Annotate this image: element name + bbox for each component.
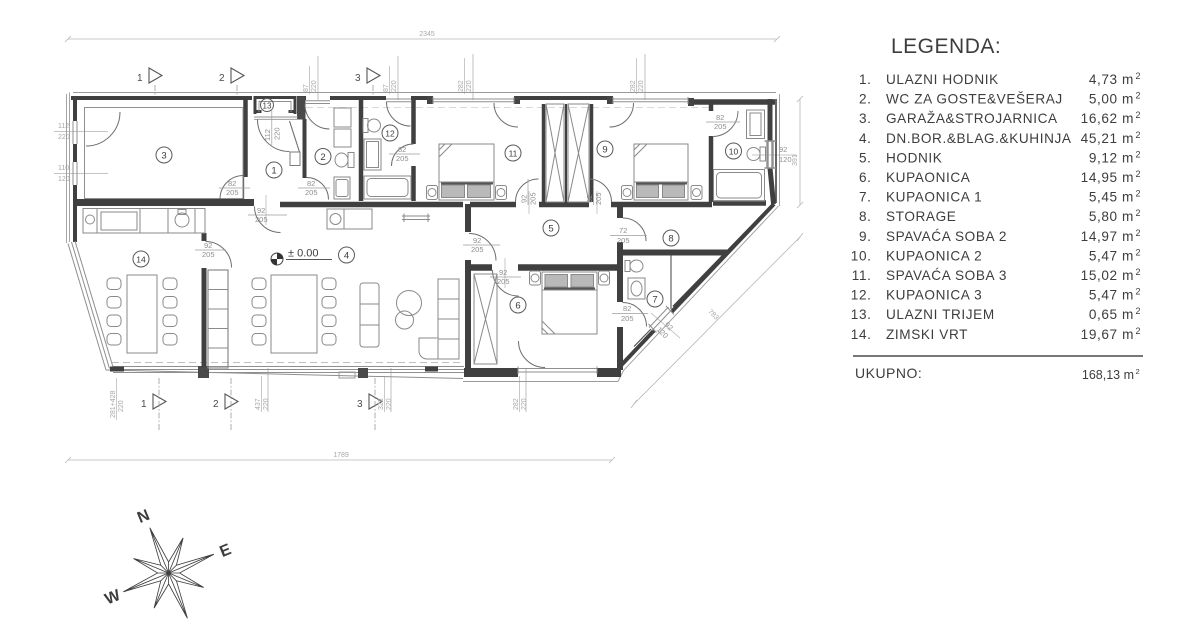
svg-text:8.: 8. (859, 209, 872, 224)
svg-text:205: 205 (202, 250, 215, 259)
svg-text:205: 205 (529, 192, 538, 205)
svg-text:205: 205 (305, 188, 318, 197)
svg-text:2: 2 (320, 152, 325, 163)
svg-text:205: 205 (226, 188, 239, 197)
svg-text:14,95 m: 14,95 m (1081, 170, 1134, 185)
svg-text:220: 220 (521, 398, 528, 410)
svg-text:282: 282 (513, 398, 520, 410)
svg-text:HODNIK: HODNIK (886, 150, 942, 165)
svg-text:14: 14 (136, 255, 146, 265)
svg-text:4.: 4. (859, 131, 872, 146)
svg-text:0,65 m: 0,65 m (1089, 307, 1134, 322)
svg-text:92: 92 (204, 241, 212, 250)
svg-text:1: 1 (137, 73, 143, 84)
svg-text:2: 2 (1136, 71, 1142, 81)
svg-text:16,62 m: 16,62 m (1081, 111, 1134, 126)
svg-text:168,13 m: 168,13 m (1082, 368, 1134, 382)
svg-text:± 0.00: ± 0.00 (288, 248, 319, 260)
svg-text:120: 120 (779, 155, 792, 164)
svg-text:10.: 10. (851, 248, 872, 263)
svg-text:220: 220 (263, 398, 270, 410)
svg-text:1: 1 (271, 166, 276, 177)
svg-text:220: 220 (273, 127, 282, 140)
svg-text:82: 82 (716, 113, 724, 122)
svg-text:2: 2 (1136, 326, 1142, 336)
svg-text:3: 3 (357, 399, 363, 410)
svg-text:ULAZNI HODNIK: ULAZNI HODNIK (886, 72, 999, 87)
svg-text:2345: 2345 (419, 31, 435, 38)
svg-text:14.: 14. (851, 327, 872, 342)
svg-text:282: 282 (630, 80, 637, 92)
svg-text:220: 220 (638, 80, 645, 92)
svg-text:87: 87 (383, 84, 390, 92)
svg-text:323: 323 (378, 398, 385, 410)
svg-text:9: 9 (602, 145, 607, 156)
svg-text:9.: 9. (859, 229, 872, 244)
svg-text:220: 220 (466, 80, 473, 92)
svg-text:72: 72 (619, 226, 627, 235)
svg-text:6.: 6. (859, 170, 872, 185)
svg-text:2: 2 (1136, 267, 1142, 277)
svg-text:92: 92 (473, 236, 481, 245)
svg-text:ULAZNI TRIJEM: ULAZNI TRIJEM (886, 307, 995, 322)
svg-text:2: 2 (1136, 287, 1142, 297)
svg-text:2.: 2. (859, 92, 872, 107)
svg-text:205: 205 (714, 122, 727, 131)
svg-text:KUPAONICA 2: KUPAONICA 2 (886, 248, 982, 263)
svg-text:2: 2 (1136, 91, 1142, 101)
svg-text:UKUPNO:: UKUPNO: (855, 365, 922, 381)
svg-text:KUPAONICA 3: KUPAONICA 3 (886, 288, 982, 303)
svg-text:205: 205 (594, 192, 603, 205)
svg-text:2: 2 (1136, 130, 1142, 140)
svg-text:2: 2 (1136, 306, 1142, 316)
svg-text:112: 112 (263, 129, 272, 141)
svg-text:11: 11 (509, 149, 518, 159)
svg-text:1: 1 (141, 399, 147, 410)
svg-text:8: 8 (668, 234, 673, 245)
svg-text:82: 82 (307, 179, 315, 188)
svg-text:2: 2 (1136, 367, 1140, 376)
svg-text:282: 282 (458, 80, 465, 92)
svg-text:281+428: 281+428 (110, 390, 117, 418)
svg-text:92: 92 (257, 206, 265, 215)
svg-text:3: 3 (161, 151, 166, 162)
svg-text:205: 205 (396, 154, 409, 163)
svg-text:205: 205 (471, 245, 484, 254)
svg-text:2: 2 (1136, 247, 1142, 257)
svg-text:STORAGE: STORAGE (886, 209, 956, 224)
svg-text:19,67 m: 19,67 m (1081, 327, 1134, 342)
svg-text:1.: 1. (859, 72, 872, 87)
svg-text:11.: 11. (852, 268, 872, 283)
svg-text:12.: 12. (851, 288, 872, 303)
svg-text:SPAVAĆA SOBA 3: SPAVAĆA SOBA 3 (886, 268, 1007, 283)
svg-text:12: 12 (385, 129, 395, 139)
svg-text:92: 92 (499, 268, 507, 277)
svg-text:5,00 m: 5,00 m (1089, 92, 1134, 107)
svg-text:2: 2 (1136, 208, 1142, 218)
svg-text:ZIMSKI VRT: ZIMSKI VRT (886, 327, 968, 342)
svg-text:2: 2 (1136, 110, 1142, 120)
svg-text:5,47 m: 5,47 m (1089, 248, 1134, 263)
svg-text:KUPAONICA: KUPAONICA (886, 170, 971, 185)
svg-text:2: 2 (1136, 149, 1142, 159)
svg-text:4: 4 (344, 251, 349, 262)
svg-text:112: 112 (58, 123, 69, 130)
svg-text:7.: 7. (859, 190, 872, 205)
svg-text:15,02 m: 15,02 m (1081, 268, 1134, 283)
svg-text:4,73 m: 4,73 m (1089, 72, 1134, 87)
svg-text:92: 92 (520, 195, 529, 203)
svg-text:205: 205 (617, 236, 630, 245)
svg-text:2: 2 (1136, 169, 1142, 179)
svg-text:5,47 m: 5,47 m (1089, 288, 1134, 303)
svg-text:220: 220 (386, 398, 393, 410)
svg-text:205: 205 (255, 215, 268, 224)
svg-text:110: 110 (58, 165, 69, 172)
svg-text:10: 10 (729, 147, 739, 157)
svg-text:5: 5 (548, 224, 553, 235)
svg-text:5,80 m: 5,80 m (1089, 209, 1134, 224)
svg-text:6: 6 (515, 301, 520, 312)
svg-text:2: 2 (219, 73, 225, 84)
svg-text:120: 120 (58, 176, 70, 183)
svg-text:13: 13 (263, 102, 272, 111)
svg-text:87: 87 (303, 84, 310, 92)
svg-text:92: 92 (585, 195, 594, 203)
svg-text:2: 2 (213, 399, 219, 410)
svg-text:220: 220 (118, 400, 125, 412)
svg-text:82: 82 (228, 179, 236, 188)
svg-text:82: 82 (623, 304, 631, 313)
svg-text:205: 205 (621, 314, 634, 323)
svg-text:45,21 m: 45,21 m (1081, 131, 1134, 146)
svg-text:82: 82 (398, 145, 406, 154)
svg-text:9,12 m: 9,12 m (1089, 150, 1134, 165)
svg-text:220: 220 (311, 80, 318, 92)
svg-text:14,97 m: 14,97 m (1081, 229, 1134, 244)
svg-text:437: 437 (255, 398, 262, 410)
svg-text:5,45 m: 5,45 m (1089, 190, 1134, 205)
svg-text:391: 391 (792, 154, 799, 166)
svg-text:2: 2 (1136, 189, 1142, 199)
svg-text:7: 7 (652, 295, 657, 306)
svg-text:220: 220 (58, 134, 70, 141)
svg-text:GARAŽA&STROJARNICA: GARAŽA&STROJARNICA (886, 111, 1058, 126)
svg-text:5.: 5. (859, 150, 872, 165)
svg-text:1789: 1789 (333, 452, 349, 459)
svg-text:3.: 3. (859, 111, 872, 126)
svg-text:220: 220 (391, 80, 398, 92)
svg-text:2: 2 (1136, 228, 1142, 238)
svg-text:13.: 13. (851, 307, 872, 322)
svg-text:92: 92 (779, 145, 787, 154)
svg-text:SPAVAĆA SOBA 2: SPAVAĆA SOBA 2 (886, 229, 1007, 244)
svg-text:3: 3 (355, 73, 361, 84)
svg-text:DN.BOR.&BLAG.&KUHINJA: DN.BOR.&BLAG.&KUHINJA (886, 131, 1072, 146)
svg-text:WC ZA GOSTE&VEŠERAJ: WC ZA GOSTE&VEŠERAJ (886, 92, 1063, 107)
svg-text:205: 205 (497, 277, 510, 286)
svg-text:LEGENDA:: LEGENDA: (891, 35, 1001, 58)
svg-text:KUPAONICA 1: KUPAONICA 1 (886, 190, 982, 205)
